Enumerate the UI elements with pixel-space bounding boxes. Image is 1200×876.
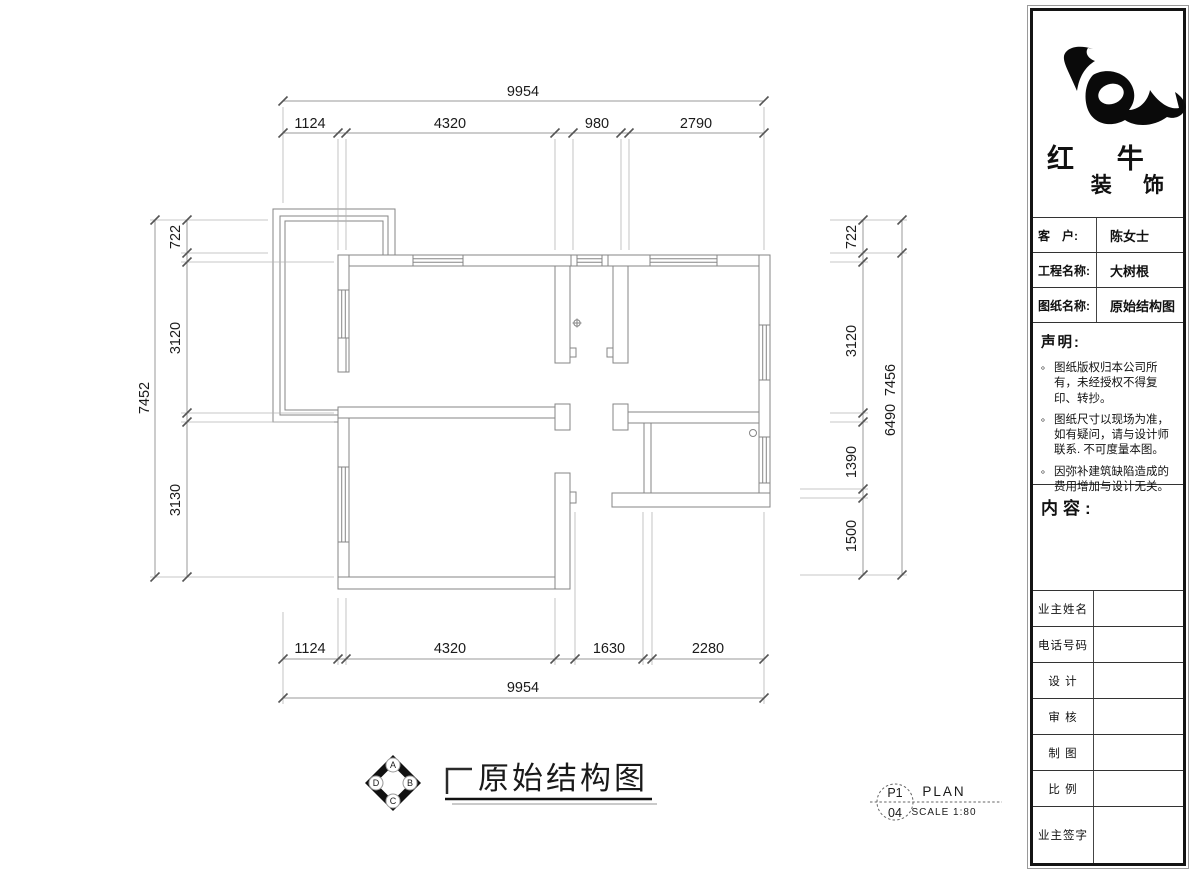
sign-field (1094, 771, 1183, 806)
wall-divider-a-cap (555, 404, 570, 430)
client-value: 陈女士 (1097, 226, 1149, 245)
dim-left-1: 722 (168, 225, 184, 249)
dim-top-1: 1124 (294, 116, 325, 132)
info-row-client: 客 户: 陈女士 (1033, 217, 1183, 252)
statement-list: 。图纸版权归本公司所有，未经授权不得复印、转抄。 。图纸尺寸以现场为准，如有疑问… (1041, 361, 1177, 495)
sign-row-owner-signature: 业主签字 (1033, 806, 1183, 863)
dim-top-2: 4320 (434, 116, 466, 132)
dim-right-3: 1390 (844, 446, 860, 478)
title-bracket (447, 769, 472, 794)
sign-row-phone: 电话号码 (1033, 626, 1183, 662)
cad-sheet: { "drawing": { "title": "原始结构图", "compas… (0, 0, 1200, 876)
stamp-sheet: 04 (888, 806, 902, 820)
brand-header: 红 牛 装 饰 (1033, 11, 1183, 217)
dim-right-4: 1500 (844, 520, 860, 552)
sign-row-drafter: 制 图 (1033, 734, 1183, 770)
wall-hall-left-jamb (570, 348, 576, 357)
compass-c: C (390, 796, 397, 806)
window-top-2 (650, 255, 717, 266)
titleblock-frame: 红 牛 装 饰 客 户: 陈女士 工程名称: 大树根 图纸名称: 原始结构图 声… (1027, 5, 1189, 869)
wall-room2-right (555, 473, 570, 589)
sheetname-label: 图纸名称: (1033, 288, 1097, 322)
wall-left-column (338, 338, 346, 372)
project-label: 工程名称: (1033, 253, 1097, 287)
info-row-project: 工程名称: 大树根 (1033, 252, 1183, 287)
entry-jamb-left (571, 255, 577, 266)
statement-item: 。因弥补建筑缺陷造成的费用增加与设计无关。 (1041, 465, 1177, 496)
wall-hall-right-jamb (607, 348, 613, 357)
sign-row-owner-name: 业主姓名 (1033, 590, 1183, 626)
content-section: 内容: (1033, 484, 1183, 590)
sign-row-reviewer: 审 核 (1033, 698, 1183, 734)
wall-bottom (338, 577, 570, 589)
dim-bottom-2: 4320 (434, 641, 466, 657)
titleblock: 红 牛 装 饰 客 户: 陈女士 工程名称: 大树根 图纸名称: 原始结构图 声… (1030, 8, 1186, 866)
floor-plan-drawing: 9954 1124 4320 980 2790 1124 4320 1630 2… (0, 0, 1030, 876)
drain-symbol (750, 430, 757, 437)
wall-hall-right (613, 266, 628, 363)
stamp-page: P1 (887, 786, 902, 800)
content-label: 内容: (1041, 499, 1096, 518)
window-right-bath (759, 437, 770, 483)
balcony (273, 209, 395, 422)
dim-bottom-3: 1630 (593, 641, 625, 657)
brand-subname: 装 饰 (1091, 169, 1177, 199)
dim-top-3: 980 (585, 116, 609, 132)
wall-bath-partition (644, 423, 651, 493)
dim-top-4: 2790 (680, 116, 712, 132)
wall-hall-left (555, 266, 570, 363)
peephole-symbol (573, 319, 582, 328)
extension-lines (150, 107, 907, 704)
info-row-sheetname: 图纸名称: 原始结构图 (1033, 287, 1183, 322)
dim-top-overall: 9954 (507, 84, 539, 100)
sign-field (1094, 591, 1183, 626)
dim-bottom-overall: 9954 (507, 680, 539, 696)
brand-logo-icon (1033, 11, 1189, 131)
sign-row-designer: 设 计 (1033, 662, 1183, 698)
walls (338, 255, 770, 589)
window-entry (577, 255, 602, 266)
dim-left-overall: 7452 (137, 382, 153, 414)
sign-field (1094, 699, 1183, 734)
compass-d: D (373, 778, 380, 788)
sign-field (1094, 627, 1183, 662)
compass-b: B (407, 778, 413, 788)
window-right-upper (759, 325, 770, 380)
bullet-mark: 。 (1041, 360, 1051, 373)
bullet-mark: 。 (1041, 464, 1051, 477)
dimension-lines (155, 101, 902, 698)
sign-field (1094, 735, 1183, 770)
window-top-1 (413, 255, 463, 266)
statement-heading: 声明: (1041, 331, 1177, 352)
dim-right-2: 3120 (844, 325, 860, 357)
wall-divider-b-cap (613, 404, 628, 430)
statement-item: 。图纸尺寸以现场为准，如有疑问，请与设计师联系. 不可度量本图。 (1041, 413, 1177, 459)
sign-field (1094, 807, 1183, 863)
statement-item: 。图纸版权归本公司所有，未经授权不得复印、转抄。 (1041, 361, 1177, 407)
compass-symbol: A B C D (365, 755, 421, 811)
dim-right-outer-1: 7456 (883, 364, 899, 396)
drawing-title: 原始结构图 (478, 761, 648, 796)
wall-bath-bottom (612, 493, 770, 507)
wall-divider-a (338, 407, 555, 418)
project-value: 大树根 (1097, 261, 1149, 280)
statement-section: 声明: 。图纸版权归本公司所有，未经授权不得复印、转抄。 。图纸尺寸以现场为准，… (1033, 322, 1183, 484)
dimension-labels: 9954 1124 4320 980 2790 1124 4320 1630 2… (137, 84, 899, 696)
wall-divider-b (628, 412, 759, 423)
window-left-lower (338, 467, 349, 542)
drawing-title-group: 原始结构图 (445, 761, 657, 804)
sign-field (1094, 663, 1183, 698)
dim-bottom-4: 2280 (692, 641, 724, 657)
window-left-upper (338, 290, 349, 338)
client-label: 客 户: (1033, 218, 1097, 252)
stamp-plan-label: PLAN (922, 784, 965, 799)
stamp-scale-label: SCALE 1:80 (911, 807, 976, 818)
sheetname-value: 原始结构图 (1097, 296, 1175, 315)
wall-room2-right-jamb (570, 492, 576, 503)
compass-a: A (390, 760, 396, 770)
dim-bottom-1: 1124 (294, 641, 325, 657)
dim-right-1: 722 (844, 225, 860, 249)
dim-right-outer-2: 6490 (883, 404, 899, 436)
sign-row-scale: 比 例 (1033, 770, 1183, 806)
dim-left-3: 3130 (168, 484, 184, 516)
sheet-stamp: P1 04 PLAN SCALE 1:80 (870, 784, 1002, 820)
dimension-ticks (151, 97, 907, 703)
dim-left-2: 3120 (168, 322, 184, 354)
entry-jamb-right (602, 255, 608, 266)
bullet-mark: 。 (1041, 412, 1051, 425)
